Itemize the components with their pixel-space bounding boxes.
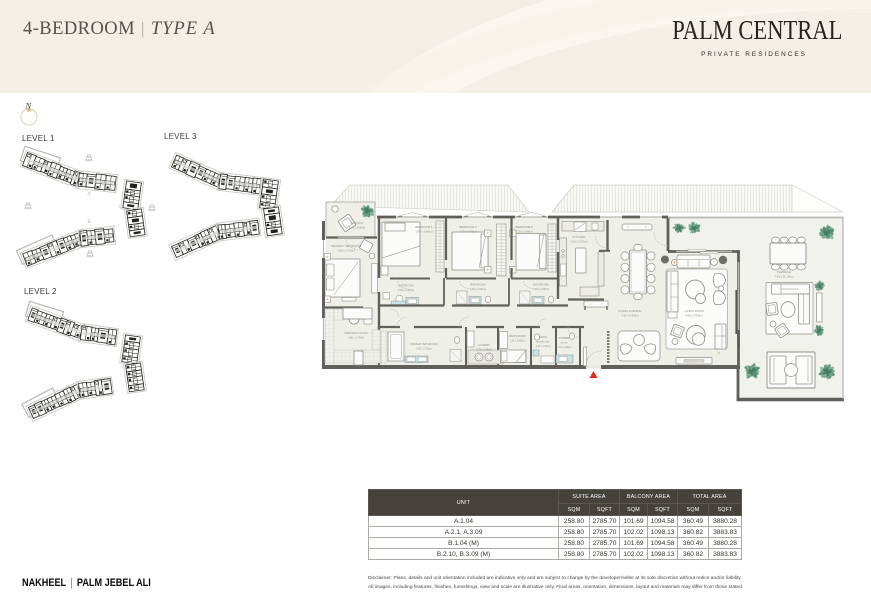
svg-text:3.26 x 2.10(m): 3.26 x 2.10(m) <box>416 348 432 351</box>
svg-text:4.08 x 7.00(m): 4.08 x 7.00(m) <box>685 314 702 318</box>
svg-text:3.80 x 4.70(m): 3.80 x 4.70(m) <box>337 249 355 253</box>
svg-text:2.46 x 1.96(m): 2.46 x 1.96(m) <box>398 289 414 292</box>
svg-text:3.10 x 3.40(m): 3.10 x 3.40(m) <box>515 230 532 234</box>
svg-text:3.20 x 3.40(m): 3.20 x 3.40(m) <box>459 230 476 234</box>
svg-text:PRIMARY BEDROOM: PRIMARY BEDROOM <box>331 244 361 248</box>
svg-text:BALCONY: BALCONY <box>351 221 364 225</box>
svg-text:2.29 x 1.98(m): 2.29 x 1.98(m) <box>476 349 492 352</box>
svg-text:ROOM: ROOM <box>561 343 568 345</box>
svg-text:2.46 x 1.96(m): 2.46 x 1.96(m) <box>533 288 549 291</box>
svg-text:7.40 x 11.28(m): 7.40 x 11.28(m) <box>774 275 793 279</box>
svg-text:BEDROOM 1: BEDROOM 1 <box>415 225 433 229</box>
svg-text:BEDROOM 2: BEDROOM 2 <box>459 225 477 229</box>
svg-text:4.20 x 8.90(m): 4.20 x 8.90(m) <box>621 314 638 318</box>
svg-text:DRESSING ROOM: DRESSING ROOM <box>344 331 368 335</box>
svg-text:2.46 x 1.96(m): 2.46 x 1.96(m) <box>470 288 486 291</box>
svg-text:BATHROOM: BATHROOM <box>533 283 549 287</box>
svg-text:PRIMARY BATHROOM: PRIMARY BATHROOM <box>410 342 437 346</box>
svg-text:3.90 x 3.40(m): 3.90 x 3.40(m) <box>415 230 432 234</box>
svg-text:TERRACE: TERRACE <box>777 270 791 274</box>
svg-text:A: A <box>87 192 91 197</box>
svg-text:MAID'S ROOM: MAID'S ROOM <box>509 335 526 338</box>
svg-text:1.49 x 2.86(m): 1.49 x 2.86(m) <box>349 227 365 230</box>
svg-text:LIVING & DINING: LIVING & DINING <box>618 309 642 313</box>
svg-text:LAUNDRY: LAUNDRY <box>478 343 491 347</box>
svg-text:1.26 x 1.93(m): 1.26 x 1.93(m) <box>536 346 551 348</box>
svg-text:LIVING ROOM: LIVING ROOM <box>684 309 704 313</box>
svg-text:1.70 x 2.10(m): 1.70 x 2.10(m) <box>557 347 572 349</box>
svg-text:BATHROOM: BATHROOM <box>398 284 414 288</box>
svg-text:BEDROOM 3: BEDROOM 3 <box>515 225 533 229</box>
svg-text:2.60 x 3.50(m): 2.60 x 3.50(m) <box>570 240 587 244</box>
svg-text:MAID'S: MAID'S <box>539 336 547 339</box>
svg-text:3.86 x 1.76(m): 3.86 x 1.76(m) <box>348 337 364 340</box>
svg-text:B: B <box>87 220 91 225</box>
svg-text:BATHROOM: BATHROOM <box>470 283 486 287</box>
svg-text:BATHROOM: BATHROOM <box>537 341 550 344</box>
svg-text:2.10 x 1.93(m): 2.10 x 1.93(m) <box>510 341 525 343</box>
svg-text:POWDER: POWDER <box>559 337 570 340</box>
svg-text:KITCHEN: KITCHEN <box>573 235 586 239</box>
